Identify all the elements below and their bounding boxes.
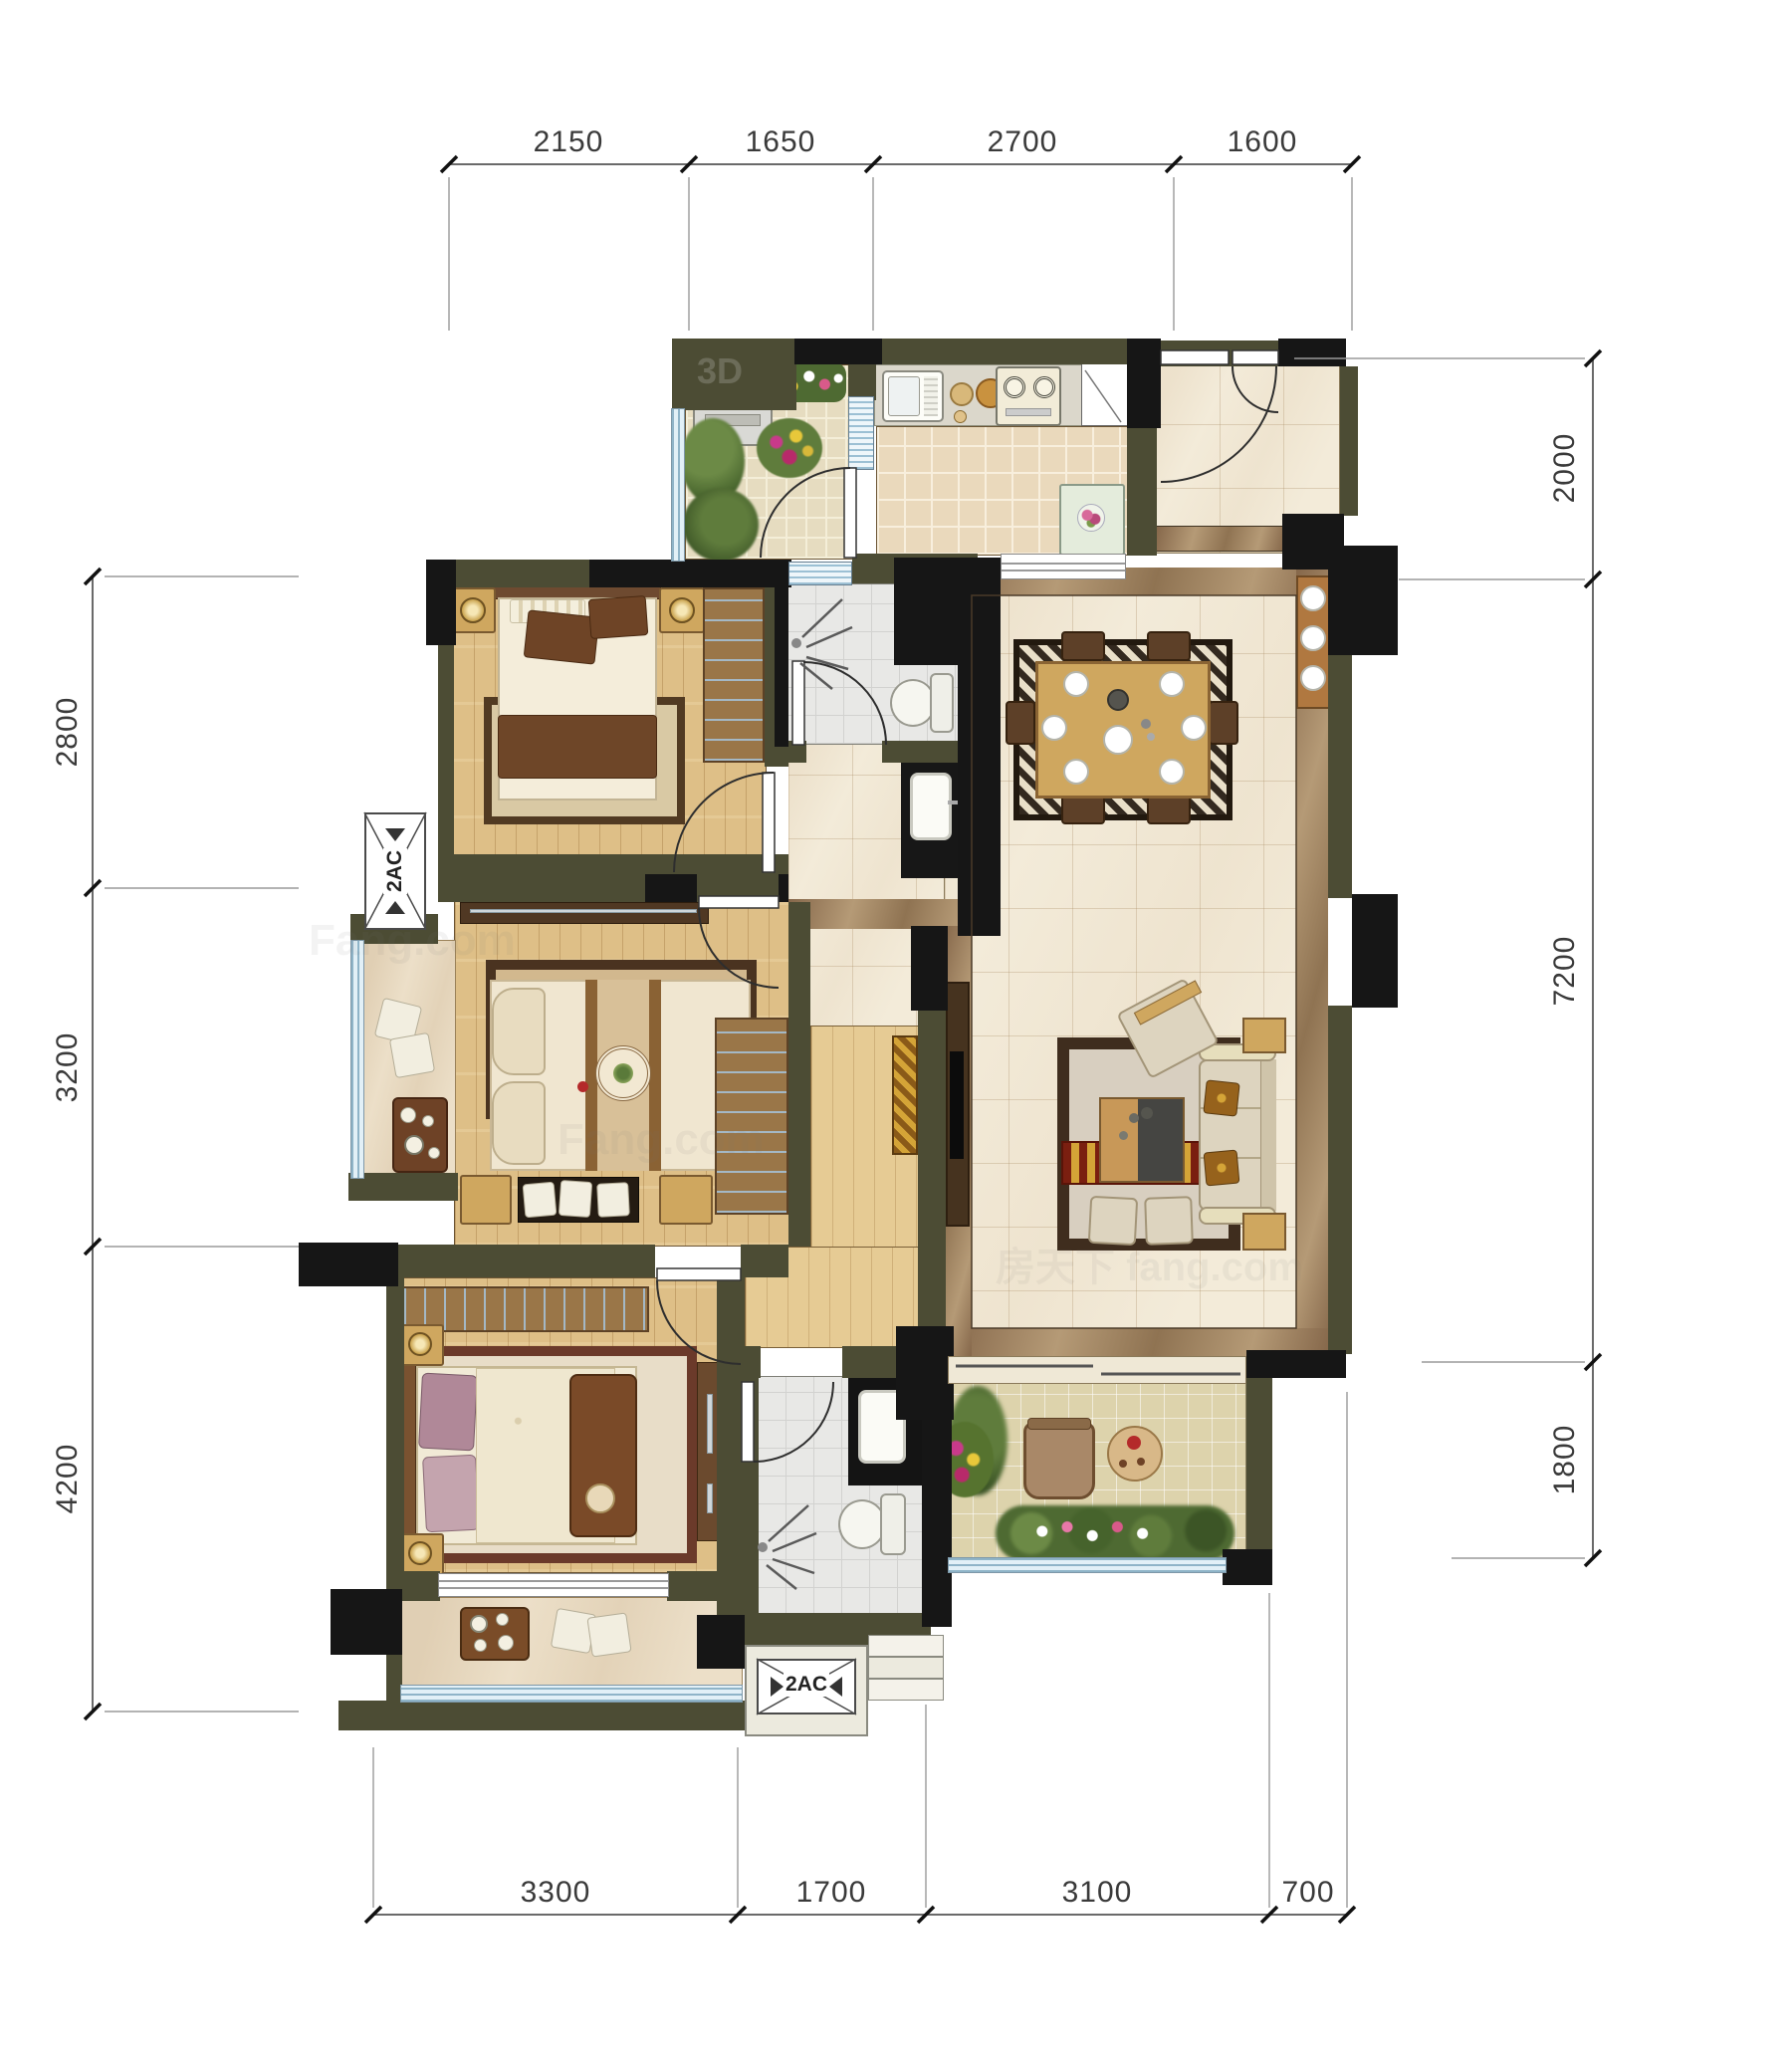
door-leaf	[699, 896, 779, 908]
door-swing-icon	[1232, 366, 1278, 412]
door-swing-icon	[674, 773, 774, 872]
dimension-label-left-1: 2800	[51, 697, 85, 768]
dimension-label-top-4: 1600	[1228, 125, 1298, 159]
dimension-label-bottom-3: 3100	[1062, 1876, 1133, 1910]
dimension-label-bottom-4: 700	[1281, 1876, 1334, 1910]
dimension-label-bottom-1: 3300	[521, 1876, 591, 1910]
ac-label-bottom: 2AC	[784, 1673, 829, 1697]
door-leaf	[1232, 350, 1278, 364]
door-leaf	[1161, 350, 1229, 364]
ac-bowtie-triangle	[385, 901, 405, 914]
door-leaf	[792, 661, 804, 745]
dimension-label-top-1: 2150	[534, 125, 604, 159]
door-swing-icon	[761, 468, 850, 558]
ac-bowtie-triangle	[771, 1677, 784, 1697]
shower-head-icon	[769, 1505, 808, 1541]
watermark: 房天下 fang.com	[996, 1235, 1303, 1292]
watermark: Fang.com	[309, 916, 516, 966]
dimension-label-top-3: 2700	[988, 125, 1058, 159]
door-leaf	[657, 1268, 741, 1280]
door-leaf	[742, 1382, 754, 1462]
watermark: 3D	[697, 350, 743, 392]
shower-drain	[791, 638, 801, 648]
window-pane	[1085, 370, 1121, 422]
dimension-label-left-2: 3200	[51, 1032, 85, 1103]
shower-spray	[773, 1559, 814, 1573]
dimension-label-right-1: 2000	[1548, 433, 1582, 504]
plan-linework	[0, 0, 1792, 2056]
shower-spray	[773, 1533, 816, 1551]
floor-plan-canvas: 2150 1650 2700 1600 3300 1700 3100 700 2…	[0, 0, 1792, 2056]
shower-spray	[806, 627, 852, 647]
shower-head-icon	[802, 599, 842, 637]
door-leaf	[844, 468, 856, 558]
door-swing-icon	[699, 908, 779, 988]
shower-spray	[767, 1565, 796, 1589]
door-swing-icon	[1161, 366, 1276, 482]
dimension-label-right-3: 1800	[1548, 1425, 1582, 1495]
door-swing-icon	[657, 1280, 741, 1364]
dimension-label-left-3: 4200	[51, 1444, 85, 1514]
ac-bowtie-triangle	[385, 828, 405, 841]
ac-bowtie-triangle	[829, 1677, 842, 1697]
living-inner-outline	[972, 595, 1296, 1328]
ac-label-left: 2AC	[383, 848, 407, 894]
door-leaf	[763, 773, 775, 872]
shower-spray	[800, 663, 832, 689]
dimension-label-top-2: 1650	[746, 125, 816, 159]
dimension-label-bottom-2: 1700	[796, 1876, 867, 1910]
dimension-label-right-2: 7200	[1548, 936, 1582, 1007]
watermark: Fang.com	[558, 1115, 765, 1165]
shower-drain	[758, 1542, 768, 1552]
door-swing-icon	[754, 1382, 833, 1462]
